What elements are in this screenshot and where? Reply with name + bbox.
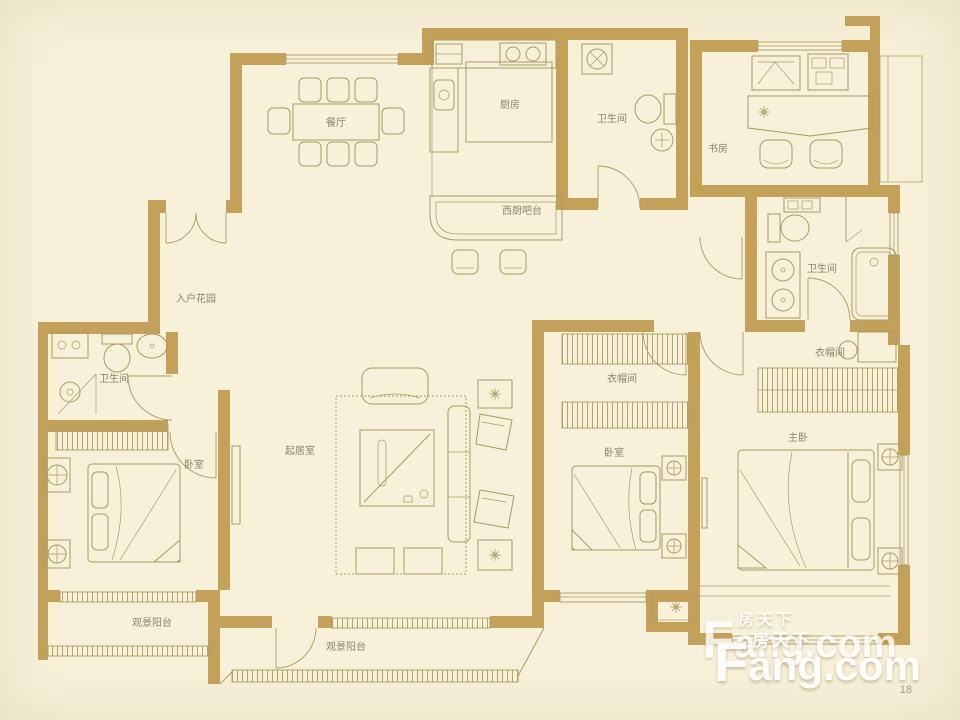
room-label-master-closet: 衣帽间	[815, 346, 845, 359]
desk	[748, 96, 872, 136]
lamp-icon	[882, 449, 898, 465]
tv	[702, 478, 707, 528]
pillow	[640, 472, 656, 504]
ac-platform	[880, 56, 922, 182]
room-label-left-bath: 卫生间	[99, 372, 129, 385]
sink	[772, 289, 794, 311]
room-label-kitchen: 厨房	[500, 98, 520, 111]
room-label-middle-closet: 衣帽间	[607, 372, 637, 385]
bed	[738, 450, 874, 570]
toilet	[781, 215, 809, 241]
plant-icon	[670, 601, 682, 613]
room-label-master-bedroom: 主卧	[788, 431, 808, 444]
sliding-window	[332, 618, 490, 628]
left-bedroom-furniture	[44, 424, 180, 568]
public-bath-furniture	[582, 44, 676, 151]
balcony-railing	[232, 670, 518, 682]
toilet	[104, 344, 130, 372]
sink	[772, 259, 794, 281]
window	[560, 593, 646, 602]
rug	[336, 396, 466, 574]
living-room-furniture	[232, 368, 514, 574]
ottoman	[404, 548, 442, 574]
walls	[38, 16, 910, 684]
lamp-icon	[48, 545, 66, 563]
bed	[572, 466, 660, 550]
room-label-entry-garden: 入户花园	[176, 292, 216, 305]
door-arcs	[128, 166, 850, 668]
kitchen-sink	[434, 80, 454, 110]
floor-plan-svg: 餐厅 厨房 卫生间 书房 西厨吧台 入户花园 卫生间 卧室 起居室 衣帽间 卧室…	[0, 0, 960, 720]
pillow	[852, 460, 870, 502]
office-chair	[752, 56, 800, 90]
room-label-left-bedroom: 卧室	[184, 458, 204, 471]
plant-icon	[489, 549, 501, 561]
mirror-icon	[47, 465, 67, 485]
wardrobe	[562, 402, 688, 428]
cabinet	[52, 332, 88, 358]
floor-plan-canvas: 餐厅 厨房 卫生间 书房 西厨吧台 入户花园 卫生间 卧室 起居室 衣帽间 卧室…	[0, 0, 960, 720]
kitchen-furniture	[430, 40, 556, 196]
room-label-study: 书房	[708, 142, 728, 155]
tv-cabinet	[232, 446, 240, 524]
room-label-middle-bedroom: 卧室	[604, 446, 624, 459]
toilet	[635, 95, 661, 123]
west-kitchen-bar	[430, 196, 562, 274]
pillow	[92, 472, 108, 508]
pillow	[92, 514, 108, 550]
lamp-icon	[667, 539, 681, 553]
bar-stool	[500, 250, 526, 274]
master-closet-furniture	[758, 332, 898, 412]
toilet-tank	[102, 334, 132, 344]
page-number: 18	[900, 684, 912, 696]
lounge-chair	[476, 414, 512, 450]
room-label-left-balcony: 观景阳台	[132, 616, 172, 629]
windows	[48, 42, 922, 684]
bar-stool	[452, 250, 478, 274]
ottoman	[356, 548, 394, 574]
pillow	[852, 518, 870, 560]
sliding-window	[60, 592, 196, 602]
master-bath-furniture	[766, 197, 896, 320]
shower-head	[60, 382, 80, 402]
armchair	[362, 368, 428, 404]
plant-icon	[489, 388, 501, 400]
armchair	[474, 490, 514, 528]
study-furniture	[748, 54, 872, 168]
middle-suite-furniture	[562, 334, 688, 558]
balcony-railing	[48, 646, 210, 656]
sink	[137, 334, 167, 358]
room-label-master-bath: 卫生间	[807, 262, 837, 275]
toilet-tank	[768, 214, 780, 242]
left-bath-furniture	[52, 332, 167, 414]
shower-corner	[58, 374, 96, 414]
lamp-icon	[882, 553, 898, 569]
vanity-counter	[766, 252, 800, 318]
room-label-center-balcony: 观景阳台	[326, 640, 366, 653]
sofa	[448, 406, 470, 542]
room-label-west-kitchen: 西厨吧台	[502, 204, 542, 217]
lamp-icon	[667, 461, 681, 475]
wardrobe	[56, 424, 168, 450]
room-label-living: 起居室	[285, 444, 315, 457]
room-label-dining: 餐厅	[326, 116, 346, 129]
pillow	[640, 510, 656, 542]
room-label-public-bath: 卫生间	[597, 112, 627, 125]
plant-icon	[758, 106, 770, 118]
wardrobe	[562, 334, 688, 364]
room-labels: 餐厅 厨房 卫生间 书房 西厨吧台 入户花园 卫生间 卧室 起居室 衣帽间 卧室…	[99, 98, 845, 653]
master-bedroom-furniture	[700, 444, 902, 596]
toilet-tank	[664, 94, 676, 124]
bed	[88, 464, 180, 562]
